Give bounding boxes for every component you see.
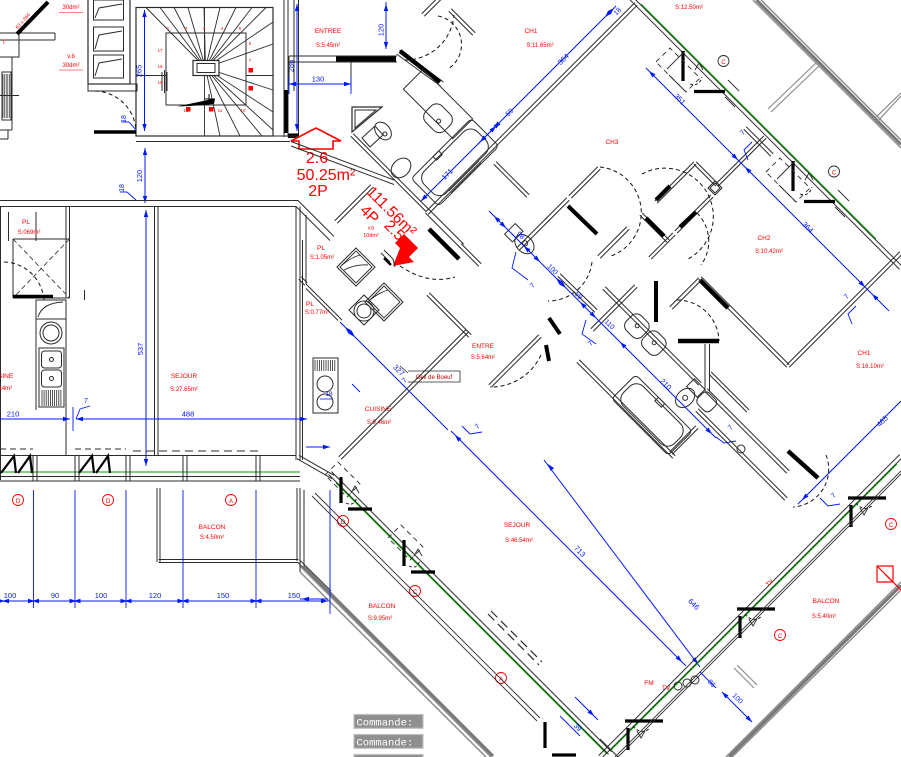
- svg-text:265: 265: [135, 65, 144, 78]
- svg-text:18: 18: [325, 391, 333, 398]
- svg-text:CUISINE: CUISINE: [0, 373, 14, 380]
- svg-text:100: 100: [4, 591, 17, 600]
- svg-text:S:0.77m²: S:0.77m²: [305, 310, 329, 316]
- svg-text:16: 16: [157, 64, 163, 69]
- svg-text:15: 15: [157, 80, 163, 85]
- svg-text:Oeil de Boeuf: Oeil de Boeuf: [416, 375, 453, 381]
- svg-text:100: 100: [95, 591, 108, 600]
- svg-text:ENTREE: ENTREE: [315, 28, 342, 35]
- svg-text:CH3: CH3: [605, 139, 618, 146]
- svg-text:S:5.40m²: S:5.40m²: [812, 614, 836, 620]
- svg-text:S:10.42m²: S:10.42m²: [755, 249, 783, 255]
- svg-text:120: 120: [377, 24, 386, 37]
- svg-text:C: C: [721, 60, 726, 66]
- svg-text:S:27.65m²: S:27.65m²: [170, 387, 198, 393]
- svg-text:CH1: CH1: [524, 28, 537, 35]
- svg-text:Commande:: Commande:: [357, 718, 414, 730]
- svg-text:S:4.50m²: S:4.50m²: [200, 535, 224, 541]
- svg-text:C: C: [778, 634, 783, 640]
- svg-text:7: 7: [84, 398, 88, 405]
- svg-text:v.b: v.b: [368, 226, 375, 232]
- svg-text:30dm²: 30dm²: [62, 5, 79, 11]
- svg-text:537: 537: [136, 343, 145, 356]
- svg-text:30dm²: 30dm²: [62, 63, 79, 69]
- svg-text:PL: PL: [306, 301, 314, 308]
- svg-text:150: 150: [288, 591, 301, 600]
- svg-text:T: T: [2, 40, 6, 46]
- svg-text:S:11.65m²: S:11.65m²: [526, 43, 553, 49]
- svg-text:PL: PL: [317, 245, 325, 252]
- svg-text:S:5.64m²: S:5.64m²: [471, 355, 495, 361]
- svg-text:17: 17: [157, 48, 163, 53]
- svg-text:11: 11: [218, 108, 223, 113]
- svg-text:ENTRE: ENTRE: [472, 343, 495, 350]
- svg-text:S:069m²: S:069m²: [18, 230, 41, 236]
- svg-text:A: A: [229, 499, 233, 505]
- svg-text:120: 120: [149, 591, 162, 600]
- svg-text:BALCON: BALCON: [813, 598, 840, 605]
- svg-text:S:46.54m²: S:46.54m²: [505, 538, 533, 544]
- svg-text:S:5.45m²: S:5.45m²: [316, 43, 340, 49]
- svg-text:BALCON: BALCON: [369, 603, 396, 610]
- svg-text:v.b: v.b: [67, 54, 75, 60]
- svg-text:50.25m²: 50.25m²: [297, 167, 356, 184]
- svg-text:TV: TV: [662, 685, 671, 692]
- svg-text:488: 488: [182, 410, 195, 419]
- svg-text:D: D: [16, 499, 21, 505]
- svg-text:C: C: [832, 171, 837, 177]
- svg-text:90: 90: [51, 591, 59, 600]
- svg-text:S:9.95m²: S:9.95m²: [368, 616, 392, 622]
- svg-text:10: 10: [240, 108, 246, 113]
- svg-text:BALCON: BALCON: [199, 524, 226, 531]
- svg-text:CH2: CH2: [757, 235, 770, 242]
- svg-text:S:1.05m²: S:1.05m²: [310, 255, 334, 261]
- svg-text:18: 18: [119, 184, 126, 192]
- svg-text:2P: 2P: [308, 183, 328, 200]
- svg-text:D: D: [106, 499, 111, 505]
- svg-text:210: 210: [7, 410, 20, 419]
- svg-text:S:12.50m²: S:12.50m²: [675, 5, 703, 11]
- svg-text:S:16.10m²: S:16.10m²: [856, 364, 884, 370]
- svg-text:PL: PL: [22, 219, 30, 226]
- svg-text:C: C: [889, 523, 894, 529]
- svg-text:Commande:: Commande:: [357, 738, 414, 750]
- svg-text:10dm²: 10dm²: [363, 233, 379, 239]
- svg-text:S:9.14m²: S:9.14m²: [0, 386, 12, 392]
- svg-text:130: 130: [312, 75, 325, 84]
- svg-text:FM: FM: [644, 680, 653, 687]
- svg-text:SEJOUR: SEJOUR: [171, 373, 198, 380]
- svg-text:120: 120: [135, 170, 144, 183]
- svg-text:150: 150: [217, 591, 230, 600]
- svg-text:SEJOUR: SEJOUR: [504, 522, 531, 529]
- svg-text:CH1: CH1: [857, 350, 870, 357]
